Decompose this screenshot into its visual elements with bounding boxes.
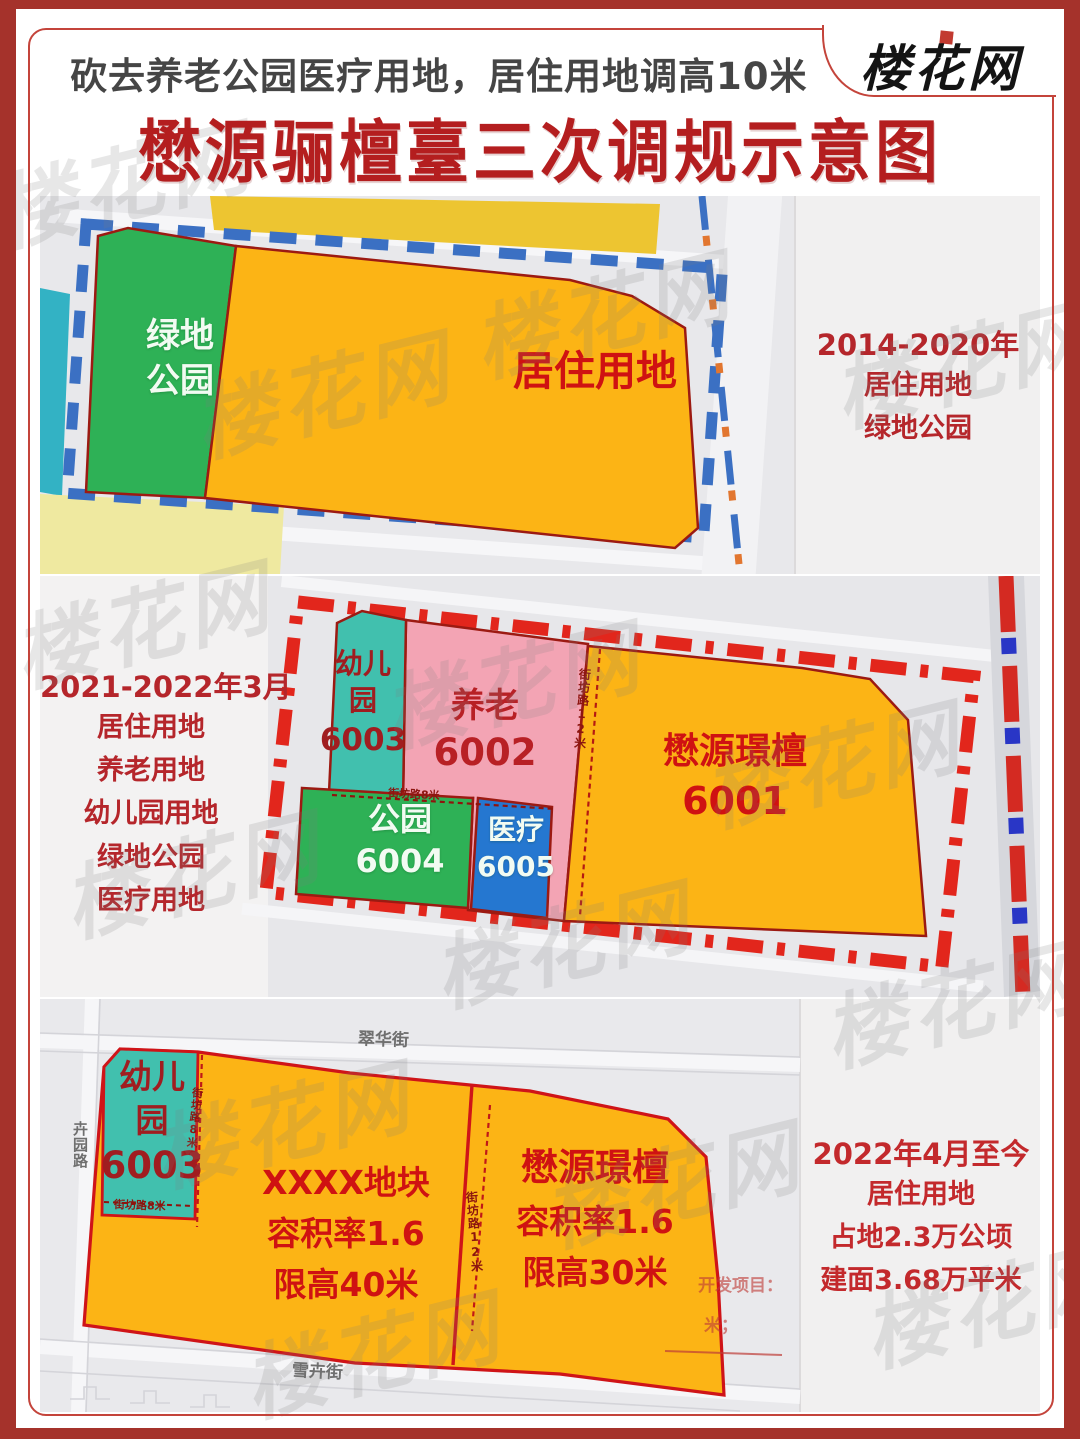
medical-label: 医疗 6005 bbox=[476, 812, 556, 886]
outer-frame-bottom bbox=[0, 1428, 1080, 1439]
panel-2022-now: 幼儿 园 6003 XXXX地块 容积率1.6 限高40米 懋源璟檀 容积率1.… bbox=[40, 999, 1040, 1412]
panel-2021-2022: 2021-2022年3月 居住用地 养老用地 幼儿园用地 绿地公园 医疗用地 幼… bbox=[40, 576, 1040, 997]
panel-2014-2020: 绿地 公园 居住用地 2014-2020年 居住用地 绿地公园 bbox=[40, 196, 1040, 574]
road-8m-label: 街坊路8米 bbox=[388, 785, 440, 804]
kindergarten-label: 幼儿 园 6003 bbox=[328, 646, 398, 761]
elder-care-label: 养老 6002 bbox=[422, 684, 548, 778]
dev-project-annotation: 开发项目： bbox=[698, 1271, 783, 1296]
note-period: 2022年4月至今 bbox=[802, 1131, 1040, 1173]
outer-frame-left bbox=[0, 0, 16, 1439]
outer-frame-right bbox=[1064, 0, 1080, 1439]
residential-label: 居住用地 bbox=[460, 344, 730, 398]
note-period: 2021-2022年3月 bbox=[40, 664, 262, 706]
main-plot-label: 懋源璟檀 6001 bbox=[615, 728, 855, 826]
street-xuehui: 雪卉街 bbox=[291, 1356, 343, 1384]
street-cuihua: 翠华街 bbox=[358, 1024, 410, 1051]
page-title: 懋源骊檀臺三次调规示意图 bbox=[40, 98, 1040, 196]
note-2021-2022: 2021-2022年3月 居住用地 养老用地 幼儿园用地 绿地公园 医疗用地 bbox=[40, 664, 262, 922]
meters-annotation: 米； bbox=[704, 1311, 738, 1336]
note-2014-2020: 2014-2020年 居住用地 绿地公园 bbox=[797, 322, 1039, 450]
banner-headline: 砍去养老公园医疗用地，居住用地调高10米 bbox=[70, 46, 860, 100]
site-logo: 楼花网 bbox=[860, 29, 1022, 101]
street-huiyuan: 卉园路 bbox=[70, 1121, 91, 1169]
park-label: 公园 6004 bbox=[340, 798, 460, 882]
right-plot-label: 懋源璟檀 容积率1.6 限高30米 bbox=[465, 1139, 725, 1299]
green-park-label: 绿地 公园 bbox=[110, 314, 250, 404]
background-zone-yellow-bottom bbox=[40, 494, 284, 574]
road-8m-horizontal-label: 街坊路8米 bbox=[114, 1196, 166, 1214]
outer-frame-top bbox=[0, 0, 1080, 9]
note-period: 2014-2020年 bbox=[797, 322, 1039, 364]
note-2022-now: 2022年4月至今 居住用地 占地2.3万公顷 建面3.68万平米 bbox=[802, 1131, 1040, 1303]
left-plot-label: XXXX地块 容积率1.6 限高40米 bbox=[222, 1157, 470, 1310]
